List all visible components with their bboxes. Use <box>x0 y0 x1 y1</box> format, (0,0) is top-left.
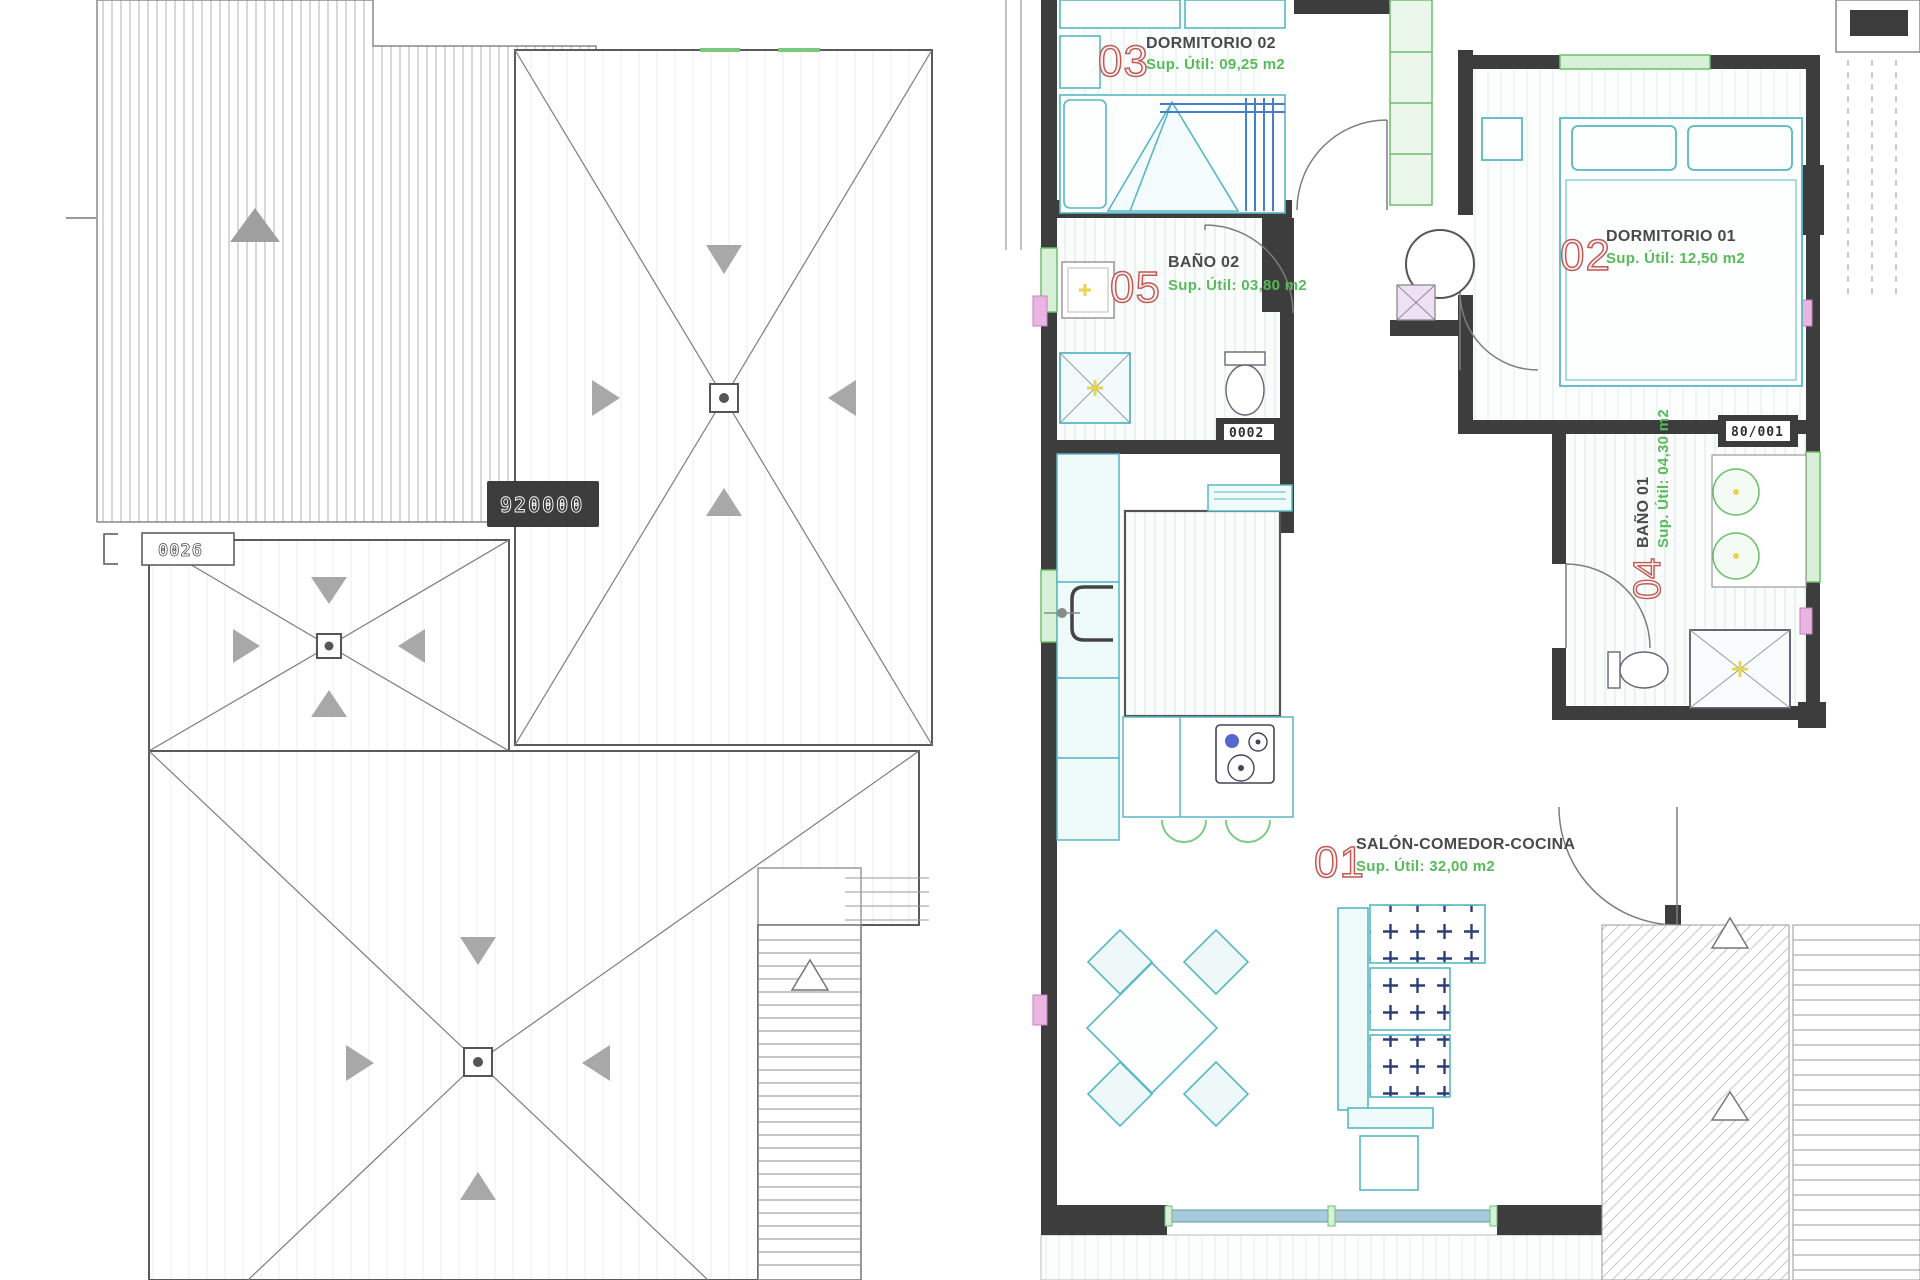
bano-01-tag: 80/001 <box>1718 415 1798 447</box>
svg-text:Sup. Útil: 32,00 m2: Sup. Útil: 32,00 m2 <box>1356 857 1495 875</box>
sheet-divider <box>1006 0 1021 250</box>
neighbor-structures <box>1836 0 1920 300</box>
toilet-bowl <box>1226 365 1264 415</box>
roof-box-label: 0026 <box>104 533 234 565</box>
svg-text:BAÑO 02: BAÑO 02 <box>1168 251 1239 271</box>
toilet-bowl <box>1620 652 1668 688</box>
svg-text:DORMITORIO 01: DORMITORIO 01 <box>1606 228 1736 245</box>
toilet-tank <box>1608 652 1620 688</box>
stove <box>1216 725 1274 783</box>
svg-text:02: 02 <box>1560 231 1611 280</box>
svg-text:Sup. Útil: 04,30 m2: Sup. Útil: 04,30 m2 <box>1654 409 1672 548</box>
kitchen-island <box>1125 511 1280 716</box>
svg-text:BAÑO 01: BAÑO 01 <box>1632 477 1652 548</box>
dining-table <box>1087 963 1217 1093</box>
plan-sheet: 920000 0026 <box>0 0 1920 1280</box>
label-salon: 01 SALÓN-COMEDOR-COCINA Sup. Útil: 32,00… <box>1314 834 1575 887</box>
toilet-tank <box>1225 352 1265 365</box>
svg-text:DORMITORIO 02: DORMITORIO 02 <box>1146 35 1276 52</box>
dining-set <box>1087 930 1248 1126</box>
floor-plan: 0002 <box>1033 0 1920 1280</box>
svg-text:SALÓN-COMEDOR-COCINA: SALÓN-COMEDOR-COCINA <box>1356 834 1575 853</box>
stools <box>1162 820 1270 842</box>
living-window <box>1165 1206 1497 1226</box>
roof-tag-text: 920000 <box>500 493 584 517</box>
roof-tag-badge: 920000 <box>487 481 599 527</box>
roof-plan: 920000 0026 <box>66 0 932 1280</box>
bano-02-tag: 0002 <box>1216 418 1282 446</box>
roof-plan-stairs <box>758 868 929 1280</box>
hip-roof-middle <box>149 540 509 751</box>
sofa <box>1338 905 1485 1190</box>
side-table <box>1360 1136 1418 1190</box>
plan-canvas: 920000 0026 <box>0 0 1920 1280</box>
svg-text:04: 04 <box>1627 558 1669 600</box>
hip-roof-top <box>515 50 932 745</box>
living-room-furniture <box>1087 905 1485 1190</box>
svg-text:Sup. Útil: 03,80 m2: Sup. Útil: 03,80 m2 <box>1168 276 1307 294</box>
terrace-strip <box>1041 1235 1681 1280</box>
svg-text:Sup. Útil: 12,50 m2: Sup. Útil: 12,50 m2 <box>1606 249 1745 267</box>
svg-text:05: 05 <box>1110 263 1161 312</box>
svg-text:03: 03 <box>1098 37 1149 86</box>
kitchen <box>1044 454 1293 842</box>
svg-text:Sup. Útil: 09,25 m2: Sup. Útil: 09,25 m2 <box>1146 55 1285 73</box>
svg-text:80/001: 80/001 <box>1731 425 1784 440</box>
roof-box-text: 0026 <box>158 541 203 561</box>
svg-text:0002: 0002 <box>1229 426 1264 441</box>
washer <box>1397 285 1435 320</box>
hall-wardrobe <box>1390 0 1432 205</box>
exterior-stairs <box>1602 918 1920 1280</box>
